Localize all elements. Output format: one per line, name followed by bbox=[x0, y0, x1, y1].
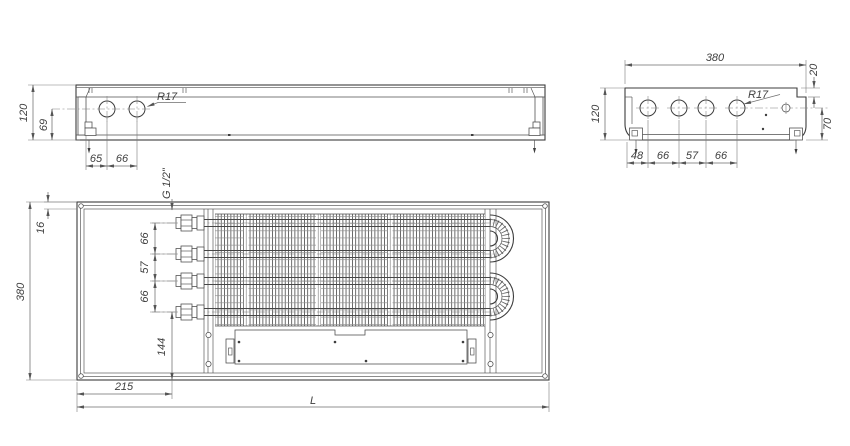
dim-end-h1: 48 bbox=[631, 150, 644, 162]
u-bend-bottom bbox=[490, 273, 514, 320]
dim-side-hole-pitch: 66 bbox=[116, 153, 129, 165]
dim-plan-pitch1: 66 bbox=[139, 232, 151, 245]
dim-end-width: 380 bbox=[706, 52, 725, 64]
panel-bracket-right bbox=[468, 339, 476, 363]
end-foot-right bbox=[790, 128, 803, 155]
drawing-canvas: 120 69 65 66 R17 bbox=[0, 0, 850, 446]
mounting-slots bbox=[89, 88, 527, 93]
dim-end-right-height: 70 bbox=[822, 117, 834, 130]
dim-plan-frame: 16 bbox=[35, 221, 47, 234]
u-bend-top bbox=[490, 215, 514, 262]
fitting bbox=[176, 215, 204, 231]
fitting bbox=[176, 304, 204, 320]
technical-drawing: 120 69 65 66 R17 bbox=[0, 0, 850, 446]
dim-plan-inlet-offset: 215 bbox=[114, 381, 134, 393]
dim-plan-tail: 144 bbox=[156, 338, 168, 356]
fin-block bbox=[215, 214, 485, 326]
corner-screw bbox=[543, 374, 548, 379]
dim-end-radius: R17 bbox=[748, 89, 769, 101]
dim-end-h4: 66 bbox=[715, 150, 728, 162]
end-holes bbox=[636, 96, 828, 120]
dim-plan-pitch2: 57 bbox=[139, 261, 151, 274]
dim-plan-pitch3: 66 bbox=[139, 290, 151, 303]
pipe-fittings bbox=[176, 215, 204, 320]
dim-side-hole-left: 65 bbox=[90, 153, 103, 165]
dim-plan-depth: 380 bbox=[15, 282, 27, 301]
end-view: 380 20 120 70 48 66 57 66 R17 bbox=[590, 52, 834, 168]
side-view: 120 69 65 66 R17 bbox=[18, 85, 545, 170]
bottom-panel bbox=[235, 330, 467, 364]
dim-end-height: 120 bbox=[590, 104, 602, 123]
plate-screw bbox=[488, 332, 493, 337]
plate-screw bbox=[488, 361, 493, 366]
side-foot-left bbox=[85, 122, 96, 154]
plate-screw bbox=[206, 332, 211, 337]
dim-end-h3: 57 bbox=[686, 150, 699, 162]
panel-bracket-left bbox=[226, 339, 234, 363]
corner-screw bbox=[543, 204, 548, 209]
side-foot-right bbox=[529, 122, 540, 154]
fitting bbox=[176, 273, 204, 289]
plate-screw bbox=[206, 361, 211, 366]
dim-side-hole-center: 69 bbox=[38, 119, 50, 131]
corner-screw bbox=[79, 374, 84, 379]
dim-plan-length: L bbox=[310, 395, 316, 407]
dim-end-h2: 66 bbox=[657, 150, 670, 162]
side-body bbox=[76, 85, 545, 140]
dim-end-step: 20 bbox=[808, 63, 820, 77]
corner-screw bbox=[79, 204, 84, 209]
dim-side-radius: R17 bbox=[157, 91, 178, 103]
plan-view: 16 380 G 1/2" 66 57 66 144 215 L bbox=[15, 167, 549, 412]
fitting bbox=[176, 246, 204, 262]
pipe-thread-label: G 1/2" bbox=[161, 167, 173, 199]
dim-side-height: 120 bbox=[18, 103, 30, 122]
